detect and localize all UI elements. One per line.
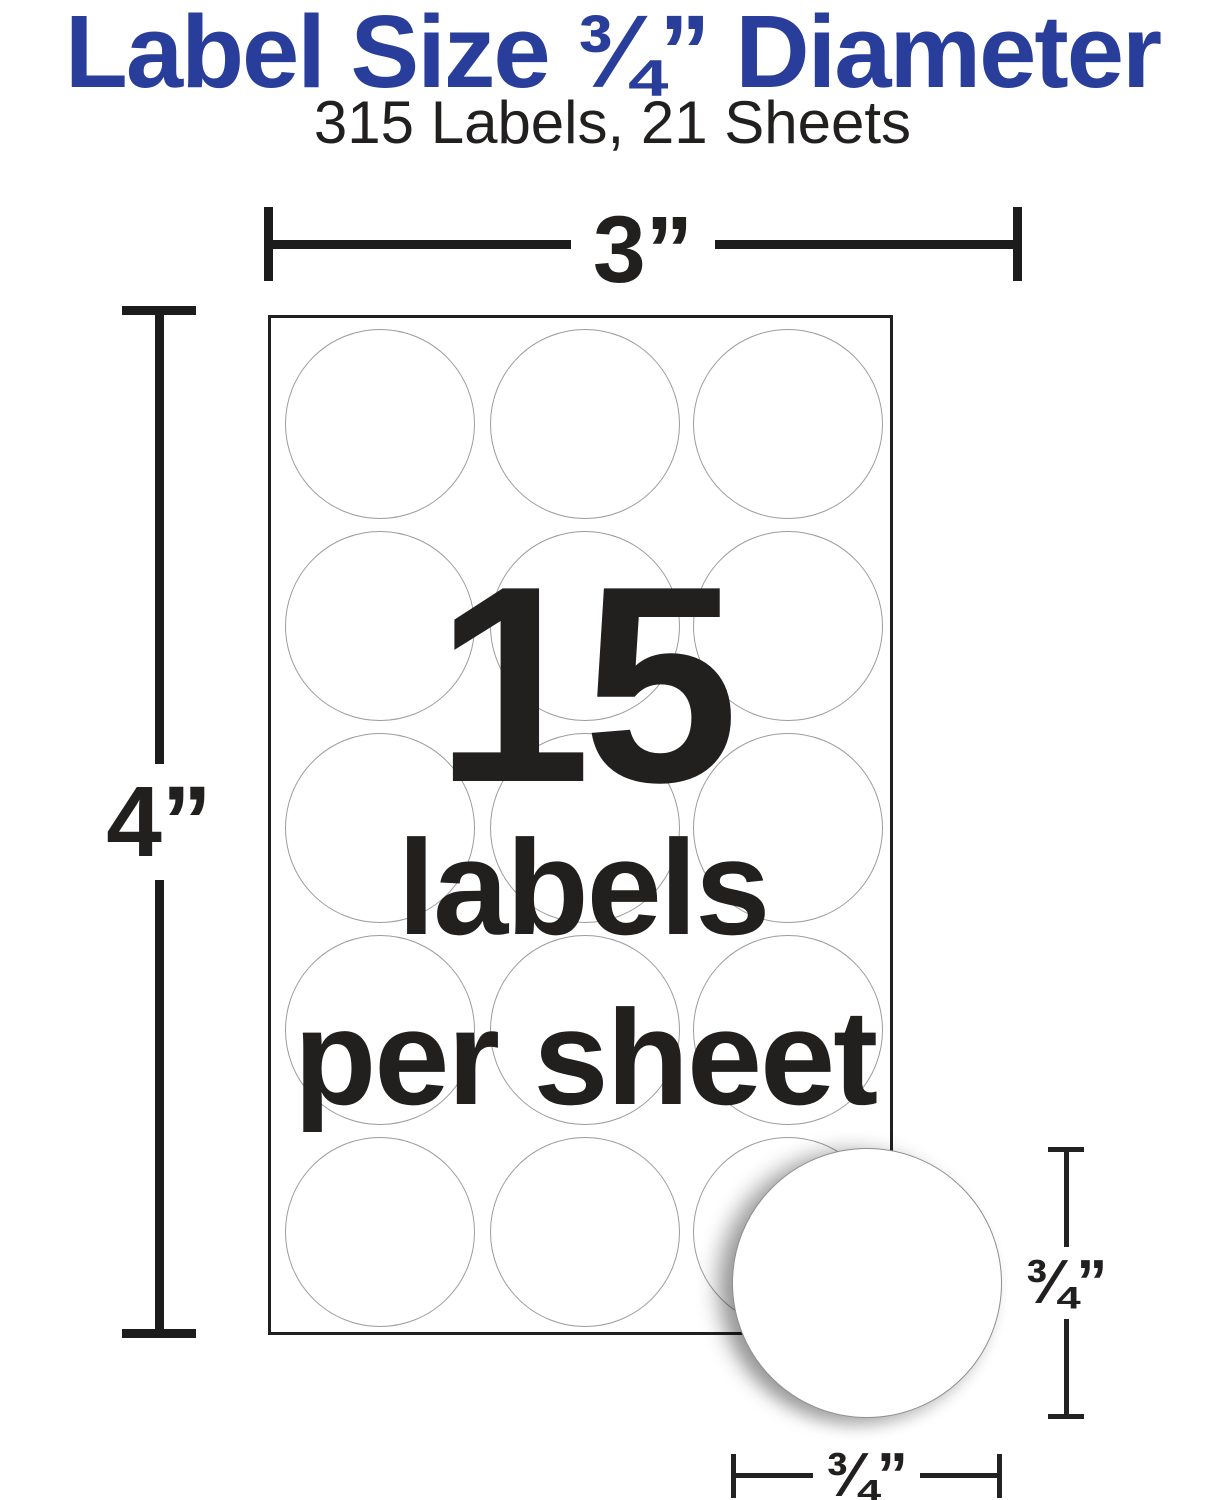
dimension-line [736, 1473, 813, 1478]
dimension-line [1064, 1319, 1069, 1414]
sheet-height-label: 4” [106, 772, 212, 872]
dimension-endcap [122, 1329, 196, 1338]
label-height-label: ¾” [1025, 1252, 1108, 1314]
dimension-line [1064, 1152, 1069, 1247]
label-width-dimension: ¾” [731, 1453, 1002, 1498]
label-height-dimension: ¾” [1021, 1147, 1111, 1419]
labels-count: 15 [435, 545, 730, 825]
dimension-endcap [1013, 207, 1022, 281]
label-circle [285, 1137, 475, 1327]
sheet-width-dimension: 3” [264, 207, 1022, 281]
label-circle [285, 329, 475, 519]
page-subtitle: 315 Labels, 21 Sheets [0, 92, 1225, 154]
dimension-line [715, 240, 1013, 249]
label-circle [693, 329, 883, 519]
labels-caption-line2: per sheet [294, 990, 876, 1125]
dimension-endcap [997, 1454, 1002, 1498]
label-size-diagram: Label Size ¾” Diameter 315 Labels, 21 Sh… [0, 0, 1225, 1500]
label-circle [490, 1137, 680, 1327]
dimension-endcap [264, 207, 273, 281]
dimension-endcap [122, 306, 196, 315]
label-width-label: ¾” [825, 1445, 908, 1500]
dimension-line [155, 880, 164, 1329]
magnified-label-circle [732, 1148, 1002, 1418]
dimension-line [920, 1473, 997, 1478]
dimension-line [273, 240, 571, 249]
sheet-width-label: 3” [593, 196, 693, 305]
labels-caption-line1: labels [398, 820, 769, 955]
sheet-height-dimension: 4” [120, 306, 198, 1338]
dimension-line [155, 315, 164, 764]
label-circle [490, 329, 680, 519]
dimension-endcap [1048, 1414, 1084, 1419]
